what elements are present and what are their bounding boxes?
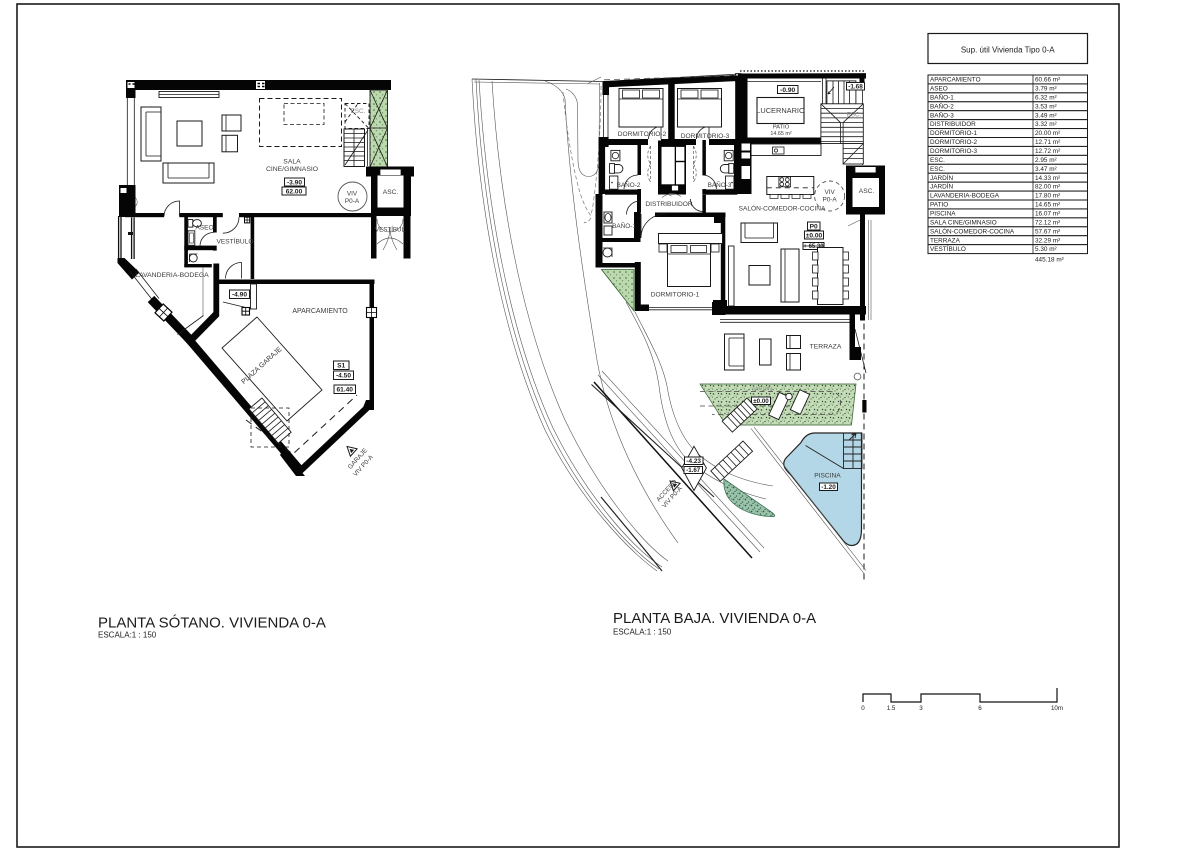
svg-text:14.65 m²: 14.65 m² xyxy=(770,131,791,137)
svg-text:P0-A: P0-A xyxy=(345,198,360,205)
svg-text:SALA: SALA xyxy=(283,159,301,166)
svg-text:DORMITORIO-2: DORMITORIO-2 xyxy=(930,139,978,146)
svg-text:PLANTA BAJA. VIVIENDA 0-A: PLANTA BAJA. VIVIENDA 0-A xyxy=(613,610,816,627)
svg-text:16.07 m²: 16.07 m² xyxy=(1035,210,1060,217)
svg-text:-1.67: -1.67 xyxy=(686,467,701,474)
svg-text:DORMITORIO-1: DORMITORIO-1 xyxy=(651,292,700,299)
svg-text:3.53 m²: 3.53 m² xyxy=(1035,103,1057,110)
svg-text:SALÓN-COMEDOR-COCINA: SALÓN-COMEDOR-COCINA xyxy=(739,204,826,213)
svg-text:2.95 m²: 2.95 m² xyxy=(1035,157,1057,164)
svg-text:0: 0 xyxy=(861,705,865,712)
svg-text:ASC.: ASC. xyxy=(383,189,399,196)
svg-text:PATIO: PATIO xyxy=(930,202,948,209)
svg-text:BAÑO-2: BAÑO-2 xyxy=(930,101,954,110)
svg-text:DORMITORIO-2: DORMITORIO-2 xyxy=(618,131,667,138)
svg-text:-3.90: -3.90 xyxy=(287,179,302,186)
svg-text:SALÓN-COMEDOR-COCINA: SALÓN-COMEDOR-COCINA xyxy=(930,226,1015,235)
svg-text:JARDÍN: JARDÍN xyxy=(930,182,953,191)
svg-text:VESTÍBULO: VESTÍBULO xyxy=(216,237,253,246)
svg-text:3.49 m²: 3.49 m² xyxy=(1035,112,1057,119)
svg-text:3.47 m²: 3.47 m² xyxy=(1035,166,1057,173)
svg-text:ESC.: ESC. xyxy=(351,108,366,115)
svg-text:DORMITORIO-3: DORMITORIO-3 xyxy=(930,148,978,155)
svg-text:BAÑO-3: BAÑO-3 xyxy=(930,110,954,119)
svg-text:APARCAMIENTO: APARCAMIENTO xyxy=(930,77,981,84)
svg-text:VESTÍBUL: VESTÍBUL xyxy=(375,227,405,234)
svg-text:-1.20: -1.20 xyxy=(821,484,836,491)
svg-text:1.5: 1.5 xyxy=(887,705,896,712)
svg-text:-1.68: -1.68 xyxy=(848,84,863,91)
svg-text:TERRAZA: TERRAZA xyxy=(930,237,961,244)
svg-text:61.40: 61.40 xyxy=(336,387,353,394)
svg-text:CINE/GIMNASIO: CINE/GIMNASIO xyxy=(266,166,318,173)
svg-text:±0.00: ±0.00 xyxy=(753,398,769,405)
svg-text:BAÑO-3: BAÑO-3 xyxy=(708,180,732,189)
svg-text:ESC.: ESC. xyxy=(847,112,862,119)
svg-text:P0: P0 xyxy=(810,223,818,230)
svg-text:3.79 m²: 3.79 m² xyxy=(1035,85,1057,92)
svg-text:PISCINA: PISCINA xyxy=(814,473,841,480)
svg-text:ESC.: ESC. xyxy=(930,166,945,173)
svg-text:6.32 m²: 6.32 m² xyxy=(1035,94,1057,101)
svg-text:±0.00: ±0.00 xyxy=(806,232,823,239)
svg-text:ASEO: ASEO xyxy=(930,85,948,92)
svg-text:VESTÍBULO: VESTÍBULO xyxy=(930,244,966,253)
svg-text:ESCALA:1 : 150: ESCALA:1 : 150 xyxy=(98,631,157,640)
svg-text:PISCINA: PISCINA xyxy=(930,210,956,217)
svg-text:VIV: VIV xyxy=(347,191,358,198)
svg-text:3.32 m²: 3.32 m² xyxy=(1035,121,1057,128)
svg-text:BAÑO-1: BAÑO-1 xyxy=(930,92,954,101)
svg-text:20.00 m²: 20.00 m² xyxy=(1035,130,1060,137)
svg-text:-4.23: -4.23 xyxy=(686,458,701,465)
svg-text:ASC.: ASC. xyxy=(859,188,875,195)
svg-text:445.18 m²: 445.18 m² xyxy=(1035,257,1064,264)
svg-text:62.00: 62.00 xyxy=(286,188,303,195)
svg-text:-0.90: -0.90 xyxy=(780,87,795,94)
svg-text:82.00 m²: 82.00 m² xyxy=(1035,184,1060,191)
svg-text:10m: 10m xyxy=(1051,705,1063,712)
svg-text:DISTRIBUIDOR: DISTRIBUIDOR xyxy=(930,121,976,128)
svg-text:-4.90: -4.90 xyxy=(232,292,247,299)
svg-text:3: 3 xyxy=(919,705,923,712)
svg-text:17.80 m²: 17.80 m² xyxy=(1035,193,1060,200)
svg-text:APARCAMIENTO: APARCAMIENTO xyxy=(292,308,348,315)
svg-text:PATIO: PATIO xyxy=(773,125,790,131)
svg-text:57.67 m²: 57.67 m² xyxy=(1035,228,1060,235)
svg-text:14.65 m²: 14.65 m² xyxy=(1035,202,1060,209)
svg-text:JARDIN: JARDIN xyxy=(752,387,772,393)
svg-text:P0-A: P0-A xyxy=(822,197,837,204)
svg-text:ASEO: ASEO xyxy=(195,225,213,232)
svg-text:ESCALA:1 : 150: ESCALA:1 : 150 xyxy=(613,628,672,637)
svg-text:LAVANDERIA-BODEGA: LAVANDERIA-BODEGA xyxy=(135,272,209,279)
svg-text:60.66 m²: 60.66 m² xyxy=(1035,77,1060,84)
svg-text:Sup. útil Vivienda Tipo 0-A: Sup. útil Vivienda Tipo 0-A xyxy=(961,46,1055,55)
svg-text:TERRAZA: TERRAZA xyxy=(810,343,842,350)
svg-text:BAÑO-1: BAÑO-1 xyxy=(612,221,636,230)
svg-text:S1: S1 xyxy=(337,363,345,370)
svg-text:VIV: VIV xyxy=(824,189,835,196)
svg-text:6: 6 xyxy=(978,705,982,712)
svg-text:12.72 m²: 12.72 m² xyxy=(1035,148,1060,155)
svg-text:BAÑO-2: BAÑO-2 xyxy=(617,180,641,189)
svg-text:-4.50: -4.50 xyxy=(336,373,351,380)
svg-text:32.29 m²: 32.29 m² xyxy=(1035,237,1060,244)
svg-text:DORMITORIO-3: DORMITORIO-3 xyxy=(681,133,730,140)
svg-text:ESC.: ESC. xyxy=(930,157,945,164)
svg-text:LAVANDERIA-BODEGA: LAVANDERIA-BODEGA xyxy=(930,193,1000,200)
svg-text:5.30 m²: 5.30 m² xyxy=(1035,246,1057,253)
svg-text:PLANTA SÓTANO. VIVIENDA 0-A: PLANTA SÓTANO. VIVIENDA 0-A xyxy=(98,615,326,632)
svg-text:LUCERNARIO: LUCERNARIO xyxy=(756,106,805,115)
svg-text:72.12 m²: 72.12 m² xyxy=(1035,219,1060,226)
svg-text:14.33 m²: 14.33 m² xyxy=(1035,175,1060,182)
svg-text:SALA CINE/GIMNASIO: SALA CINE/GIMNASIO xyxy=(930,219,997,226)
svg-text:12.71 m²: 12.71 m² xyxy=(1035,139,1060,146)
svg-text:DISTRIBUIDOR: DISTRIBUIDOR xyxy=(645,201,692,208)
svg-text:JARDÍN: JARDÍN xyxy=(930,173,953,182)
svg-text:DORMITORIO-1: DORMITORIO-1 xyxy=(930,130,978,137)
